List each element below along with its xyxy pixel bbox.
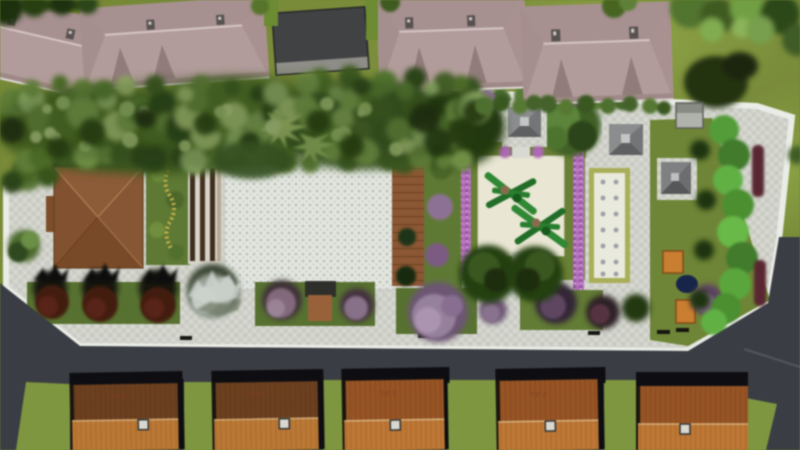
svg-text:TIP 2: TIP 2 (110, 394, 127, 401)
svg-text:TIP 2: TIP 2 (250, 392, 267, 399)
svg-text:TIP 2: TIP 2 (530, 392, 547, 399)
svg-text:TIP 2: TIP 2 (380, 391, 397, 398)
